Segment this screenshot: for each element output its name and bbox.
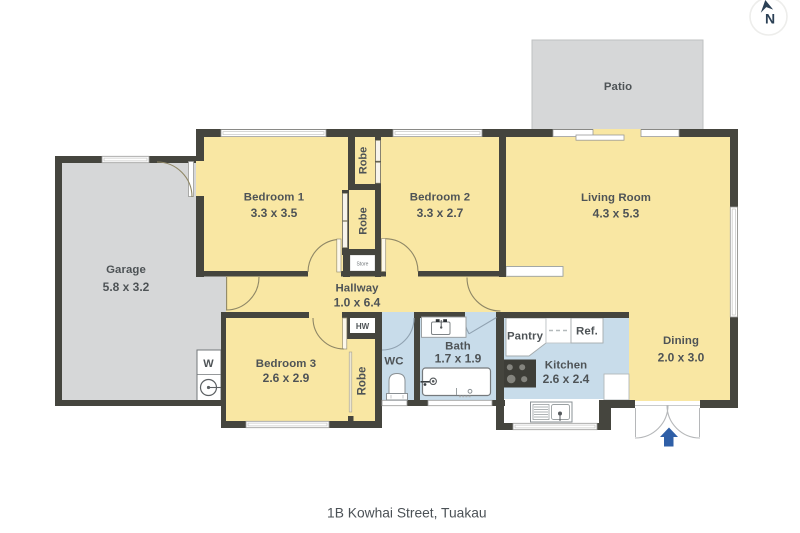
svg-text:HW: HW <box>356 322 370 331</box>
svg-text:2.0 x 3.0: 2.0 x 3.0 <box>658 351 705 365</box>
svg-text:4.3 x 5.3: 4.3 x 5.3 <box>593 207 640 221</box>
svg-text:Store: Store <box>357 261 369 267</box>
svg-text:2.6 x 2.9: 2.6 x 2.9 <box>263 371 310 385</box>
svg-text:WC: WC <box>384 356 403 368</box>
svg-text:Living Room: Living Room <box>581 192 651 204</box>
svg-text:Bedroom 3: Bedroom 3 <box>256 358 316 370</box>
svg-text:Hallway: Hallway <box>335 283 379 295</box>
svg-text:Dining: Dining <box>663 335 699 347</box>
svg-text:1.0 x 6.4: 1.0 x 6.4 <box>334 296 381 310</box>
svg-text:3.3 x 2.7: 3.3 x 2.7 <box>417 206 464 220</box>
svg-text:N: N <box>765 11 775 27</box>
svg-text:3.3 x 3.5: 3.3 x 3.5 <box>251 206 298 220</box>
svg-text:W: W <box>203 358 214 370</box>
svg-text:5.8 x 3.2: 5.8 x 3.2 <box>103 280 150 294</box>
svg-text:Kitchen: Kitchen <box>545 360 587 372</box>
svg-text:1.7 x 1.9: 1.7 x 1.9 <box>435 352 482 366</box>
svg-text:1B Kowhai Street, Tuakau: 1B Kowhai Street, Tuakau <box>327 506 487 521</box>
svg-text:Robe: Robe <box>358 207 370 235</box>
svg-text:Robe: Robe <box>358 147 370 175</box>
svg-text:Robe: Robe <box>357 367 369 396</box>
svg-text:Ref.: Ref. <box>576 326 598 338</box>
svg-text:Bedroom 1: Bedroom 1 <box>244 192 305 204</box>
svg-text:Pantry: Pantry <box>507 331 544 343</box>
svg-text:Garage: Garage <box>106 264 146 276</box>
svg-text:Patio: Patio <box>604 81 632 93</box>
svg-text:2.6 x 2.4: 2.6 x 2.4 <box>543 372 590 386</box>
svg-text:Bedroom 2: Bedroom 2 <box>410 192 470 204</box>
